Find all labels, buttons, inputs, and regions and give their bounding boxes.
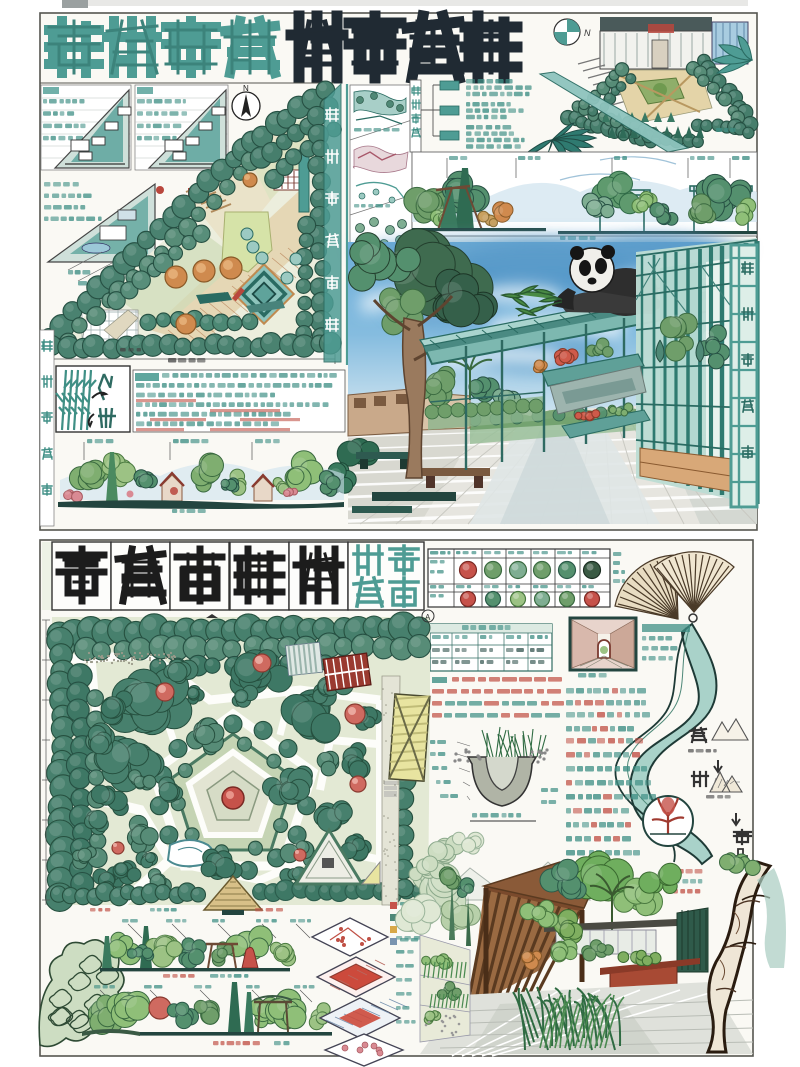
svg-text:N: N (584, 28, 591, 38)
svg-text:N: N (243, 84, 249, 93)
svg-text:A: A (425, 613, 431, 622)
